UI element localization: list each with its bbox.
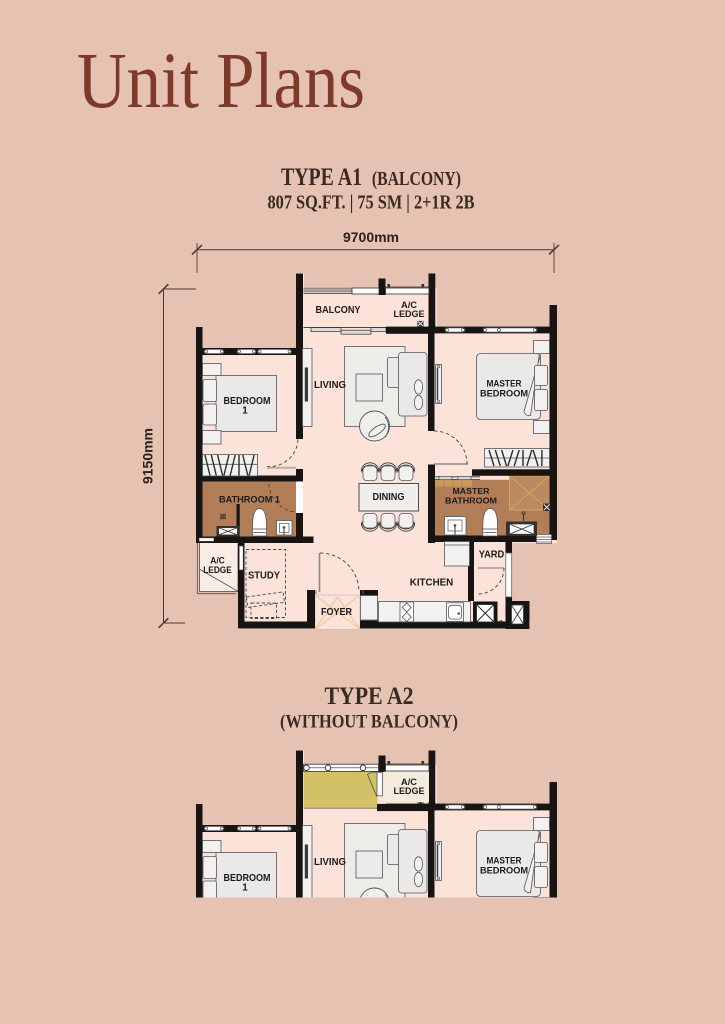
svg-text:Unit Plans: Unit Plans	[77, 38, 365, 125]
svg-text:BATHROOM 1: BATHROOM 1	[219, 495, 280, 505]
svg-text:A/C: A/C	[210, 556, 225, 566]
svg-text:KITCHEN: KITCHEN	[410, 578, 454, 589]
svg-text:TYPE A2: TYPE A2	[325, 683, 414, 710]
svg-text:MASTER: MASTER	[453, 486, 491, 496]
svg-text:807 SQ.FT. | 75 SM | 2+1R 2B: 807 SQ.FT. | 75 SM | 2+1R 2B	[268, 193, 475, 214]
svg-text:FOYER: FOYER	[321, 607, 352, 618]
svg-text:STUDY: STUDY	[248, 571, 280, 582]
svg-text:BALCONY: BALCONY	[316, 305, 361, 316]
svg-text:9150mm: 9150mm	[140, 428, 156, 484]
svg-text:LEDGE: LEDGE	[203, 565, 232, 575]
svg-text:TYPE A1 (BALCONY): TYPE A1 (BALCONY)	[281, 164, 461, 191]
svg-text:DINING: DINING	[373, 492, 405, 503]
svg-text:YARD: YARD	[479, 550, 505, 561]
svg-text:9700mm: 9700mm	[343, 229, 399, 245]
svg-text:(WITHOUT BALCONY): (WITHOUT BALCONY)	[280, 712, 458, 733]
svg-text:BATHROOM: BATHROOM	[445, 496, 497, 506]
